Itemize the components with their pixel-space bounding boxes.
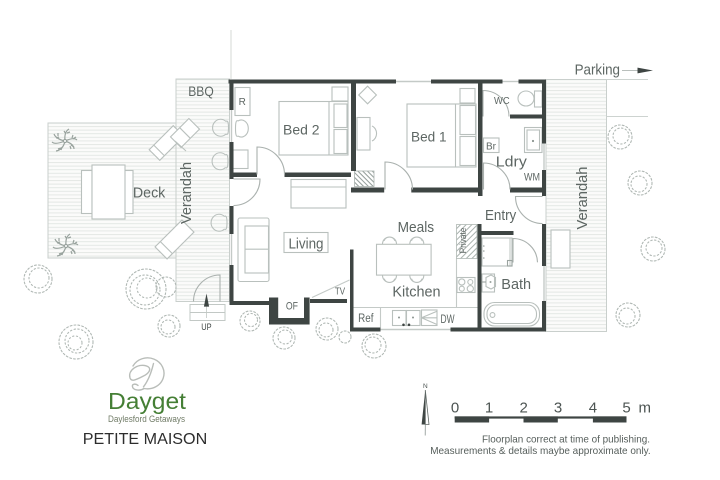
svg-text:Meals: Meals	[398, 219, 435, 236]
svg-text:4: 4	[589, 400, 597, 417]
svg-text:BBQ: BBQ	[188, 83, 214, 99]
svg-text:1: 1	[485, 400, 493, 417]
svg-text:Ref: Ref	[358, 313, 374, 325]
svg-text:5: 5	[622, 400, 630, 417]
svg-text:Ldry: Ldry	[496, 153, 528, 170]
svg-text:Living: Living	[288, 236, 323, 253]
svg-text:Verandah: Verandah	[574, 167, 591, 230]
svg-text:WC: WC	[494, 96, 510, 107]
svg-text:3: 3	[554, 400, 562, 417]
svg-text:R: R	[239, 97, 246, 108]
svg-text:Bed 1: Bed 1	[411, 128, 447, 144]
svg-text:Br: Br	[486, 142, 497, 153]
svg-text:Entry: Entry	[485, 207, 517, 224]
svg-text:UP: UP	[201, 322, 211, 333]
svg-text:Deck: Deck	[133, 185, 166, 202]
svg-text:Private: Private	[458, 228, 469, 254]
svg-text:DW: DW	[441, 314, 455, 326]
svg-text:WM: WM	[524, 171, 540, 183]
svg-text:Floorplan correct at time of p: Floorplan correct at time of publishing.	[482, 435, 650, 446]
svg-text:Bath: Bath	[501, 276, 531, 293]
svg-text:PETITE MAISON: PETITE MAISON	[83, 431, 208, 448]
svg-text:Verandah: Verandah	[178, 162, 195, 224]
svg-text:Daylesford Getaways: Daylesford Getaways	[108, 414, 185, 424]
svg-text:Measurements & details maybe a: Measurements & details maybe approximate…	[430, 446, 651, 457]
svg-text:Dayget: Dayget	[108, 388, 186, 414]
svg-text:Parking: Parking	[575, 62, 620, 79]
svg-text:Bed 2: Bed 2	[283, 122, 320, 138]
svg-text:OF: OF	[286, 300, 298, 312]
svg-text:TV: TV	[335, 285, 345, 297]
svg-text:m: m	[639, 400, 652, 417]
svg-text:0: 0	[451, 400, 459, 417]
svg-text:N: N	[423, 383, 428, 390]
svg-text:Kitchen: Kitchen	[392, 284, 440, 301]
svg-text:2: 2	[520, 400, 528, 417]
